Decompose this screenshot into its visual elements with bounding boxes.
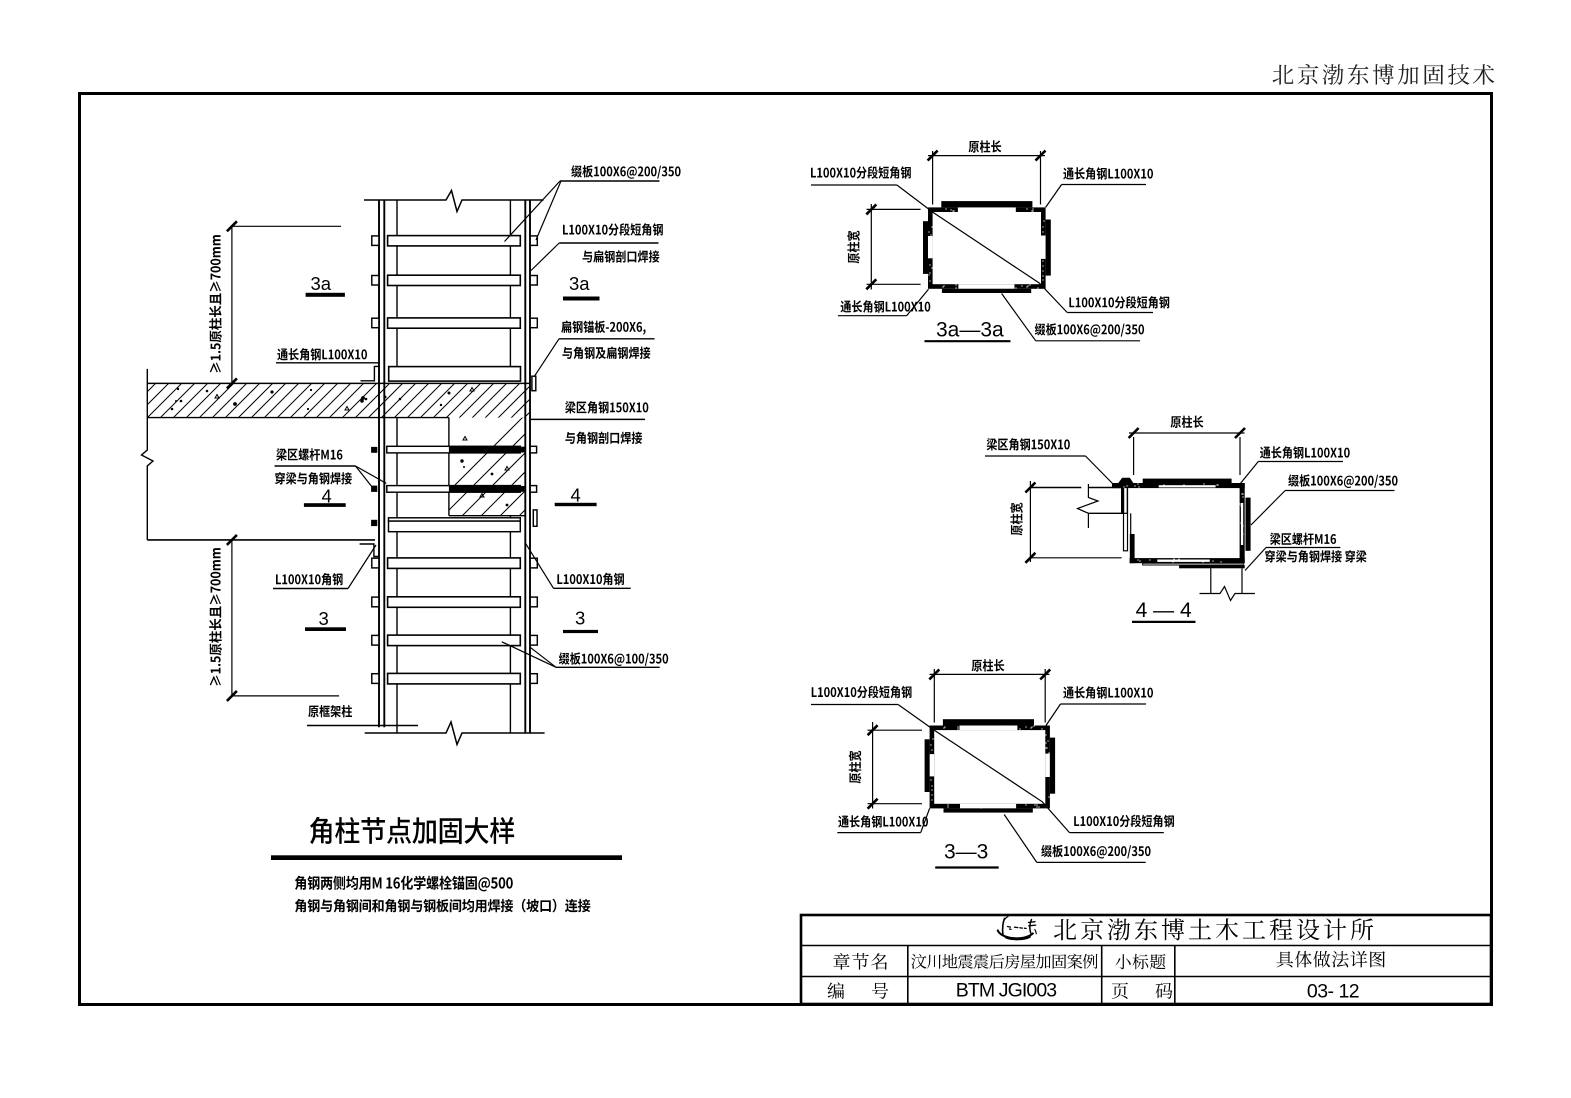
svg-text:3: 3 xyxy=(575,608,585,629)
svg-text:3a—3a: 3a—3a xyxy=(936,319,1004,342)
svg-text:3a: 3a xyxy=(569,273,590,294)
svg-text:3: 3 xyxy=(319,608,329,629)
svg-text:4 — 4: 4 — 4 xyxy=(1136,599,1192,622)
svg-text:3a: 3a xyxy=(311,273,332,294)
svg-text:03- 12: 03- 12 xyxy=(1307,981,1359,1003)
svg-text:4: 4 xyxy=(571,485,581,506)
svg-text:3—3: 3—3 xyxy=(944,841,988,864)
svg-text:BTM JGI003: BTM JGI003 xyxy=(956,980,1057,1002)
